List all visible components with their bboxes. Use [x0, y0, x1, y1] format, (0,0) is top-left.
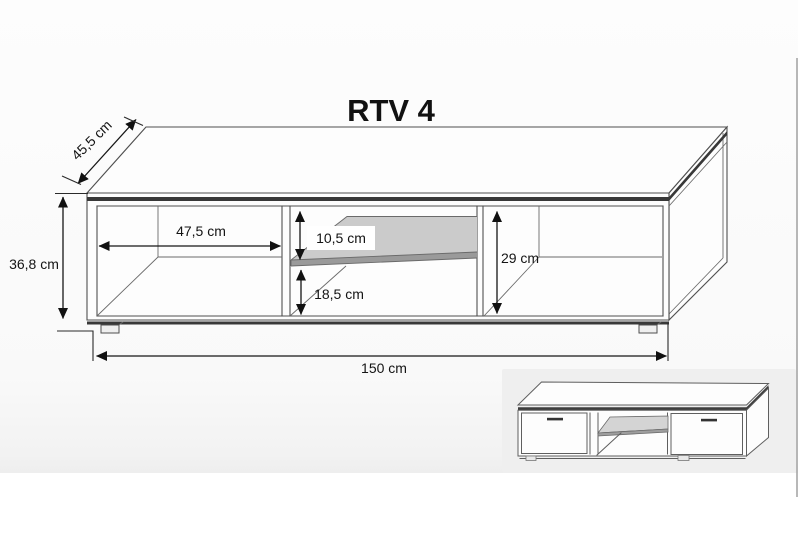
bottom-edge-band	[87, 322, 669, 325]
side-height-label: 29 cm	[501, 250, 539, 266]
assembled-preview-thumbnail	[502, 369, 796, 473]
lower-gap-label: 18,5 cm	[314, 286, 364, 302]
diagram-canvas: RTV 4 45,5 cm 36,8 cm 47,5 cm 10,5 cm 18…	[0, 0, 800, 533]
thumb-right-foot	[678, 456, 689, 461]
thumb-right-door-handle	[701, 419, 717, 422]
page-title: RTV 4	[347, 93, 436, 128]
thumb-left-door-handle	[547, 418, 563, 421]
left-compartment-width-label: 47,5 cm	[176, 223, 226, 239]
total-width-label: 150 cm	[361, 360, 407, 376]
upper-gap-label: 10,5 cm	[316, 230, 366, 246]
top-edge-band-front	[87, 197, 669, 201]
thumb-left-foot	[526, 456, 536, 461]
cabinet-top-face	[87, 127, 727, 193]
thumb-top-face	[518, 382, 769, 405]
height-label: 36,8 cm	[9, 256, 59, 272]
